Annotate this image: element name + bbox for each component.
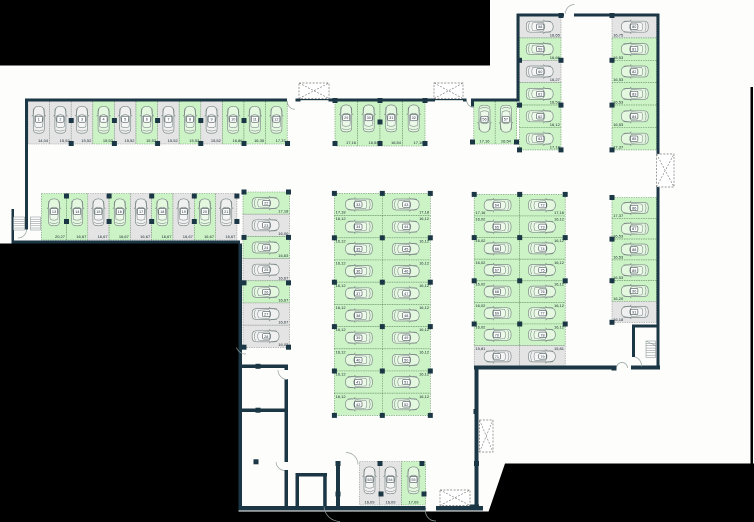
svg-text:7: 7 (167, 118, 169, 122)
svg-text:16,67: 16,67 (98, 234, 109, 239)
svg-text:16,02: 16,02 (475, 325, 486, 330)
svg-text:49: 49 (404, 336, 408, 340)
svg-text:16,12: 16,12 (419, 305, 430, 310)
svg-text:8: 8 (189, 118, 191, 122)
svg-text:16,54: 16,54 (501, 139, 512, 144)
svg-text:17,18: 17,18 (419, 210, 430, 215)
svg-text:20: 20 (203, 210, 207, 214)
svg-text:16,53: 16,53 (613, 55, 624, 60)
svg-text:16,02: 16,02 (475, 217, 486, 222)
svg-text:16,20: 16,20 (613, 296, 624, 301)
svg-text:5: 5 (124, 118, 126, 122)
svg-text:16,67: 16,67 (278, 275, 289, 280)
svg-text:18: 18 (160, 210, 164, 214)
svg-text:81: 81 (632, 48, 636, 52)
svg-text:13: 13 (52, 210, 56, 214)
svg-text:16,12: 16,12 (336, 261, 347, 266)
svg-text:66: 66 (495, 247, 499, 251)
svg-text:12: 12 (274, 118, 278, 122)
svg-text:26: 26 (264, 290, 268, 294)
svg-text:29: 29 (344, 116, 348, 120)
svg-text:16,12: 16,12 (419, 261, 430, 266)
svg-text:72: 72 (540, 204, 544, 208)
svg-text:17,18: 17,18 (336, 210, 347, 215)
svg-text:16,09: 16,09 (364, 500, 375, 505)
svg-text:16,67: 16,67 (140, 234, 151, 239)
svg-text:62: 62 (538, 115, 542, 119)
svg-text:2: 2 (59, 118, 61, 122)
svg-text:15,52: 15,52 (211, 138, 222, 143)
svg-text:34: 34 (356, 225, 360, 229)
svg-text:16,53: 16,53 (613, 122, 624, 127)
svg-text:17,37: 17,37 (276, 138, 287, 143)
svg-text:31: 31 (389, 116, 393, 120)
svg-text:16,53: 16,53 (613, 77, 624, 82)
svg-text:1: 1 (38, 118, 40, 122)
svg-text:24: 24 (264, 246, 268, 250)
svg-text:32: 32 (412, 116, 416, 120)
svg-text:17,37: 17,37 (613, 213, 624, 218)
svg-text:17,16: 17,16 (554, 210, 565, 215)
svg-text:16,53: 16,53 (613, 275, 624, 280)
svg-text:85: 85 (632, 137, 636, 141)
svg-text:16,12: 16,12 (336, 283, 347, 288)
svg-text:15,52: 15,52 (81, 138, 92, 143)
svg-text:55: 55 (411, 478, 415, 482)
svg-text:65: 65 (495, 225, 499, 229)
svg-text:78: 78 (540, 333, 544, 337)
svg-text:16,54: 16,54 (391, 140, 402, 145)
svg-text:30: 30 (367, 116, 371, 120)
svg-text:35: 35 (356, 247, 360, 251)
svg-text:16,02: 16,02 (475, 260, 486, 265)
svg-text:16,12: 16,12 (554, 217, 565, 222)
svg-text:51: 51 (404, 381, 408, 385)
svg-text:17,18: 17,18 (278, 209, 289, 214)
svg-text:83: 83 (632, 92, 636, 96)
svg-text:16,12: 16,12 (336, 238, 347, 243)
svg-text:60: 60 (538, 70, 542, 74)
svg-text:16,67: 16,67 (278, 298, 289, 303)
svg-text:16,67: 16,67 (278, 320, 289, 325)
svg-text:16,12: 16,12 (554, 260, 565, 265)
svg-text:89: 89 (632, 269, 636, 273)
svg-text:19: 19 (182, 210, 186, 214)
svg-text:16,35: 16,35 (254, 138, 265, 143)
svg-text:54: 54 (388, 478, 392, 482)
svg-text:87: 87 (632, 227, 636, 231)
svg-text:86: 86 (632, 206, 636, 210)
svg-text:15,52: 15,52 (124, 138, 135, 143)
svg-text:44: 44 (404, 225, 408, 229)
svg-text:45: 45 (404, 247, 408, 251)
svg-text:50: 50 (404, 358, 408, 362)
svg-text:79: 79 (540, 355, 544, 359)
svg-text:10: 10 (231, 118, 235, 122)
svg-text:14: 14 (75, 210, 79, 214)
svg-text:82: 82 (632, 70, 636, 74)
svg-text:59: 59 (538, 48, 542, 52)
svg-text:16,67: 16,67 (119, 234, 130, 239)
svg-text:9: 9 (211, 118, 213, 122)
svg-text:77: 77 (540, 312, 544, 316)
svg-text:16,53: 16,53 (613, 234, 624, 239)
svg-text:16,02: 16,02 (475, 238, 486, 243)
svg-text:17,09: 17,09 (408, 500, 419, 505)
svg-text:20,27: 20,27 (55, 234, 66, 239)
svg-text:17: 17 (139, 210, 143, 214)
svg-text:36: 36 (356, 270, 360, 274)
svg-text:28: 28 (264, 335, 268, 339)
svg-text:16,12: 16,12 (419, 349, 430, 354)
svg-text:33: 33 (356, 203, 360, 207)
svg-text:15,81: 15,81 (554, 346, 565, 351)
svg-text:16,02: 16,02 (475, 281, 486, 286)
svg-text:39: 39 (356, 336, 360, 340)
svg-text:15,52: 15,52 (168, 138, 179, 143)
svg-text:76: 76 (540, 290, 544, 294)
svg-text:16,09: 16,09 (385, 500, 396, 505)
svg-text:16,12: 16,12 (419, 394, 430, 399)
svg-text:16,12: 16,12 (336, 372, 347, 377)
svg-text:80: 80 (632, 25, 636, 29)
svg-text:40: 40 (356, 358, 360, 362)
svg-text:27: 27 (264, 313, 268, 317)
svg-text:16,12: 16,12 (336, 327, 347, 332)
svg-text:11: 11 (253, 118, 257, 122)
svg-text:17,16: 17,16 (346, 140, 357, 145)
svg-text:71: 71 (495, 355, 499, 359)
svg-text:16,12: 16,12 (550, 122, 561, 127)
svg-text:69: 69 (495, 312, 499, 316)
svg-text:3: 3 (81, 118, 83, 122)
svg-text:91: 91 (632, 310, 636, 314)
svg-text:16,12: 16,12 (336, 305, 347, 310)
svg-text:58: 58 (538, 25, 542, 29)
svg-text:52: 52 (404, 403, 408, 407)
svg-text:15,81: 15,81 (475, 346, 486, 351)
svg-text:15: 15 (96, 210, 100, 214)
svg-text:61: 61 (538, 92, 542, 96)
svg-text:42: 42 (356, 403, 360, 407)
svg-text:53: 53 (367, 478, 371, 482)
svg-text:25: 25 (264, 268, 268, 272)
svg-text:16,67: 16,67 (204, 234, 215, 239)
svg-text:37: 37 (356, 292, 360, 296)
svg-text:84: 84 (632, 115, 636, 119)
svg-text:22: 22 (264, 202, 268, 206)
svg-text:57: 57 (504, 118, 508, 122)
svg-text:16,12: 16,12 (554, 303, 565, 308)
svg-text:23: 23 (264, 224, 268, 228)
svg-text:88: 88 (632, 248, 636, 252)
svg-text:16,67: 16,67 (183, 234, 194, 239)
svg-text:16,12: 16,12 (419, 216, 430, 221)
svg-text:16,02: 16,02 (475, 303, 486, 308)
svg-text:38: 38 (356, 314, 360, 318)
svg-text:14,04: 14,04 (38, 138, 49, 143)
svg-text:56: 56 (482, 118, 486, 122)
svg-text:17,16: 17,16 (475, 210, 486, 215)
svg-text:48: 48 (404, 314, 408, 318)
svg-text:17,37: 17,37 (613, 144, 624, 149)
svg-text:21: 21 (224, 210, 228, 214)
svg-text:43: 43 (404, 203, 408, 207)
svg-text:67: 67 (495, 269, 499, 273)
svg-text:16,12: 16,12 (336, 349, 347, 354)
svg-text:4: 4 (103, 118, 105, 122)
svg-text:68: 68 (495, 290, 499, 294)
svg-text:16,67: 16,67 (76, 234, 87, 239)
svg-text:63: 63 (538, 137, 542, 141)
svg-text:70: 70 (495, 333, 499, 337)
svg-text:75: 75 (540, 269, 544, 273)
svg-text:73: 73 (540, 225, 544, 229)
svg-text:64: 64 (495, 204, 499, 208)
svg-text:46: 46 (404, 270, 408, 274)
svg-text:16,65: 16,65 (550, 32, 561, 37)
svg-text:6: 6 (146, 118, 148, 122)
svg-text:47: 47 (404, 292, 408, 296)
svg-text:17,16: 17,16 (479, 139, 490, 144)
svg-text:16,67: 16,67 (225, 234, 236, 239)
svg-text:16,53: 16,53 (613, 254, 624, 259)
svg-text:41: 41 (356, 381, 360, 385)
svg-text:16,53: 16,53 (613, 100, 624, 105)
svg-text:16,12: 16,12 (336, 216, 347, 221)
svg-text:16,63: 16,63 (278, 253, 289, 258)
svg-text:16,12: 16,12 (336, 394, 347, 399)
svg-text:16,18: 16,18 (613, 317, 624, 322)
svg-text:16,27: 16,27 (550, 77, 561, 82)
svg-text:90: 90 (632, 290, 636, 294)
svg-text:16,75: 16,75 (613, 32, 624, 37)
svg-text:16,67: 16,67 (161, 234, 172, 239)
svg-text:16: 16 (118, 210, 122, 214)
svg-text:74: 74 (540, 247, 544, 251)
